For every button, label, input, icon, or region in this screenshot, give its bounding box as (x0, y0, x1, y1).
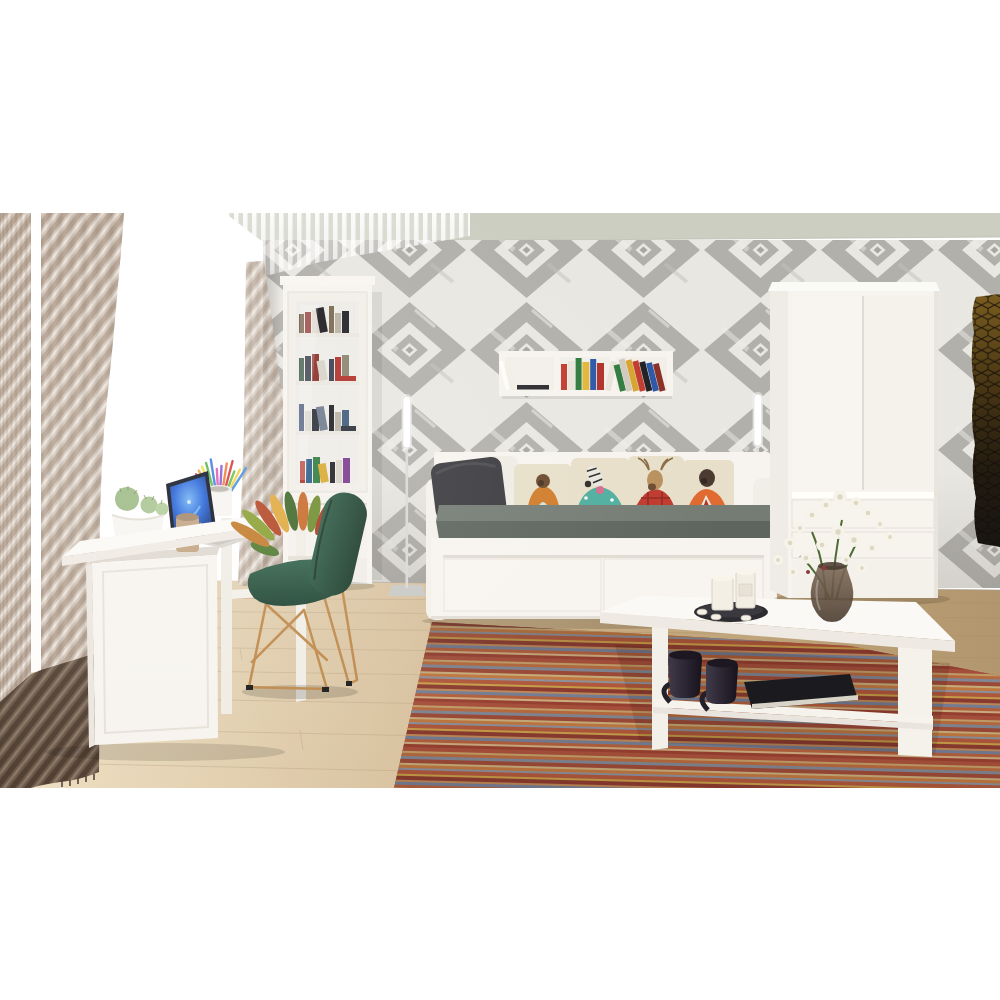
interior-render (0, 0, 1000, 1000)
scene-canvas (0, 0, 1000, 1000)
window-light-spill (0, 213, 1000, 788)
